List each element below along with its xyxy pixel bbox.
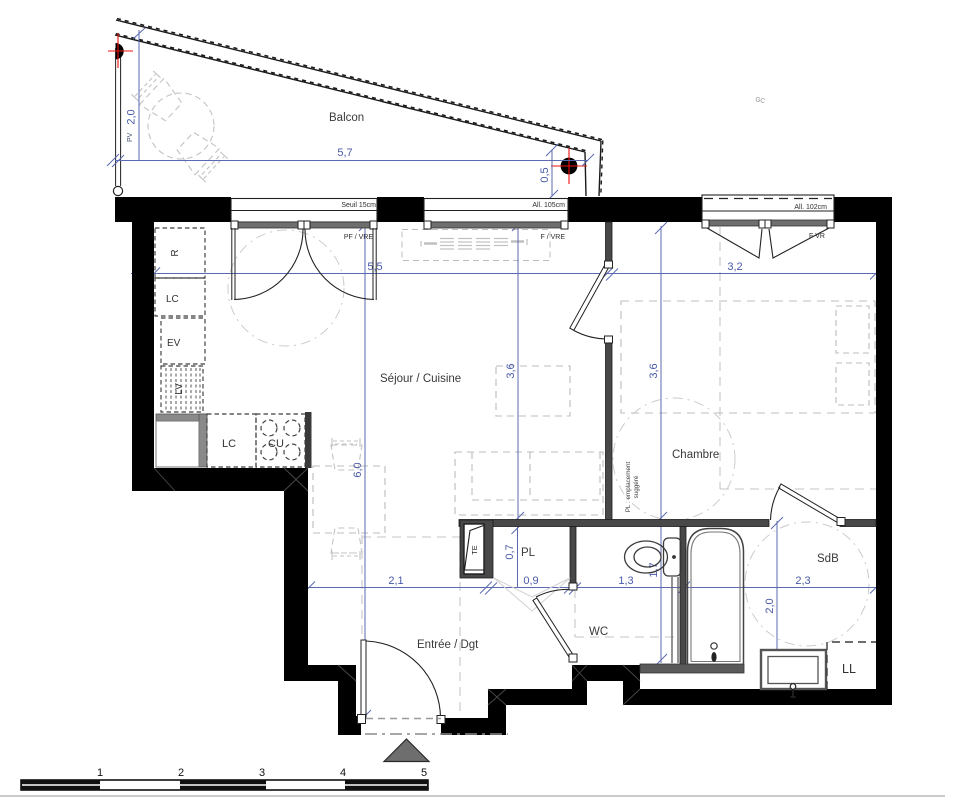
svg-text:3,6: 3,6 <box>648 363 660 378</box>
svg-text:0,5: 0,5 <box>539 167 551 182</box>
svg-text:R: R <box>170 249 181 256</box>
svg-text:PL : emplacement: PL : emplacement <box>625 461 632 512</box>
svg-text:0,7: 0,7 <box>504 544 516 559</box>
svg-text:SdB: SdB <box>817 553 839 565</box>
svg-text:0,9: 0,9 <box>523 575 538 587</box>
svg-text:2: 2 <box>178 767 184 779</box>
svg-text:WC: WC <box>589 626 608 638</box>
svg-text:EV: EV <box>167 338 181 349</box>
svg-text:PL: PL <box>521 547 536 559</box>
svg-text:3: 3 <box>259 767 265 779</box>
svg-text:F / VRE: F / VRE <box>540 234 565 241</box>
svg-text:Balcon: Balcon <box>329 112 364 124</box>
svg-text:LC: LC <box>222 438 236 450</box>
svg-text:3,6: 3,6 <box>505 363 517 378</box>
svg-text:3,2: 3,2 <box>727 261 742 273</box>
svg-text:Seuil 15cm: Seuil 15cm <box>341 202 376 209</box>
svg-text:All. 102cm: All. 102cm <box>794 204 827 211</box>
svg-text:LV: LV <box>174 383 185 395</box>
svg-text:PV: PV <box>127 132 134 142</box>
svg-text:5: 5 <box>421 767 427 779</box>
svg-text:2,0: 2,0 <box>764 598 776 613</box>
svg-text:5,5: 5,5 <box>367 261 382 273</box>
svg-text:5,7: 5,7 <box>337 147 352 159</box>
svg-text:CU: CU <box>268 438 284 450</box>
svg-text:2,1: 2,1 <box>388 575 403 587</box>
svg-text:1,3: 1,3 <box>618 575 633 587</box>
svg-text:TE: TE <box>470 545 479 555</box>
svg-text:2,0: 2,0 <box>126 109 138 124</box>
svg-text:suggéré: suggéré <box>633 475 640 498</box>
svg-text:6,0: 6,0 <box>352 462 364 477</box>
svg-text:4: 4 <box>340 767 346 779</box>
svg-text:All. 105cm: All. 105cm <box>532 202 565 209</box>
svg-text:PF / VRE: PF / VRE <box>344 234 374 241</box>
svg-text:Séjour / Cuisine: Séjour / Cuisine <box>380 373 461 385</box>
svg-text:Entrée / Dgt: Entrée / Dgt <box>417 639 479 651</box>
svg-text:1: 1 <box>97 767 103 779</box>
svg-text:2,3: 2,3 <box>795 575 810 587</box>
svg-text:LL: LL <box>842 662 856 676</box>
svg-text:Chambre: Chambre <box>672 449 719 461</box>
svg-text:LC: LC <box>166 294 179 305</box>
